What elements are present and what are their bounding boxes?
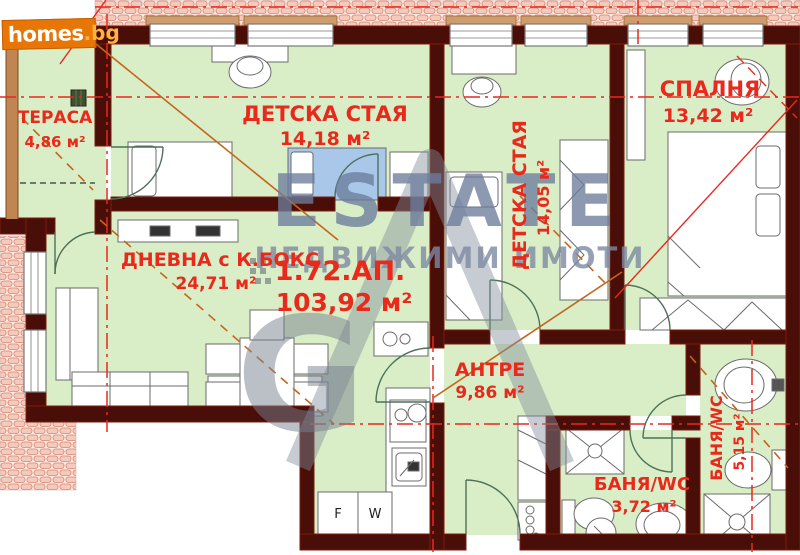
room-label-kids1: ДЕТСКА СТАЯ [242,102,408,126]
room-area-bath1: 5,15 м² [732,414,748,471]
room-area-bedroom: 13,42 м² [663,105,754,127]
room-label-terrace: ТЕРАСА [18,108,93,128]
room-area-living: 24,71 м² [175,274,256,294]
apartment-id-label: 1.72.АП. [275,256,406,287]
floorplan-canvas: F W G ESTATE НЕДВИЖИМИ ИМОТИ ТЕРАСА 4,86… [0,0,800,555]
room-area-kids2: 14,05 м² [534,160,553,236]
fridge-label: F [334,507,341,522]
room-label-kids2: ДЕТСКА СТАЯ [509,120,531,270]
apartment-area-label: 103,92 м² [276,288,413,317]
room-area-bath2: 3,72 м² [611,497,676,516]
washer-label: W [369,507,382,522]
homes-bg-logo: homes.bg [2,18,97,50]
room-label-bath1: БАНЯ/WC [707,395,726,481]
homes-bg-logo-tld: .bg [83,22,120,43]
balcony-railing [4,28,20,228]
watermark-title: ESTATE [272,159,625,243]
room-area-kids1: 14,18 м² [280,128,371,150]
room-label-hall: АНТРЕ [455,359,525,381]
terrace-planter [71,90,86,106]
room-area-hall: 9,86 м² [455,383,524,403]
homes-bg-logo-name: homes [8,23,84,46]
room-label-bath2: БАНЯ/WC [594,474,690,495]
floorplan-drawing: F W G ESTATE НЕДВИЖИМИ ИМОТИ ТЕРАСА 4,86… [0,0,800,555]
room-area-terrace: 4,86 м² [24,133,85,151]
room-terrace-floor [6,30,106,232]
room-label-bedroom: СПАЛНЯ [660,77,760,101]
